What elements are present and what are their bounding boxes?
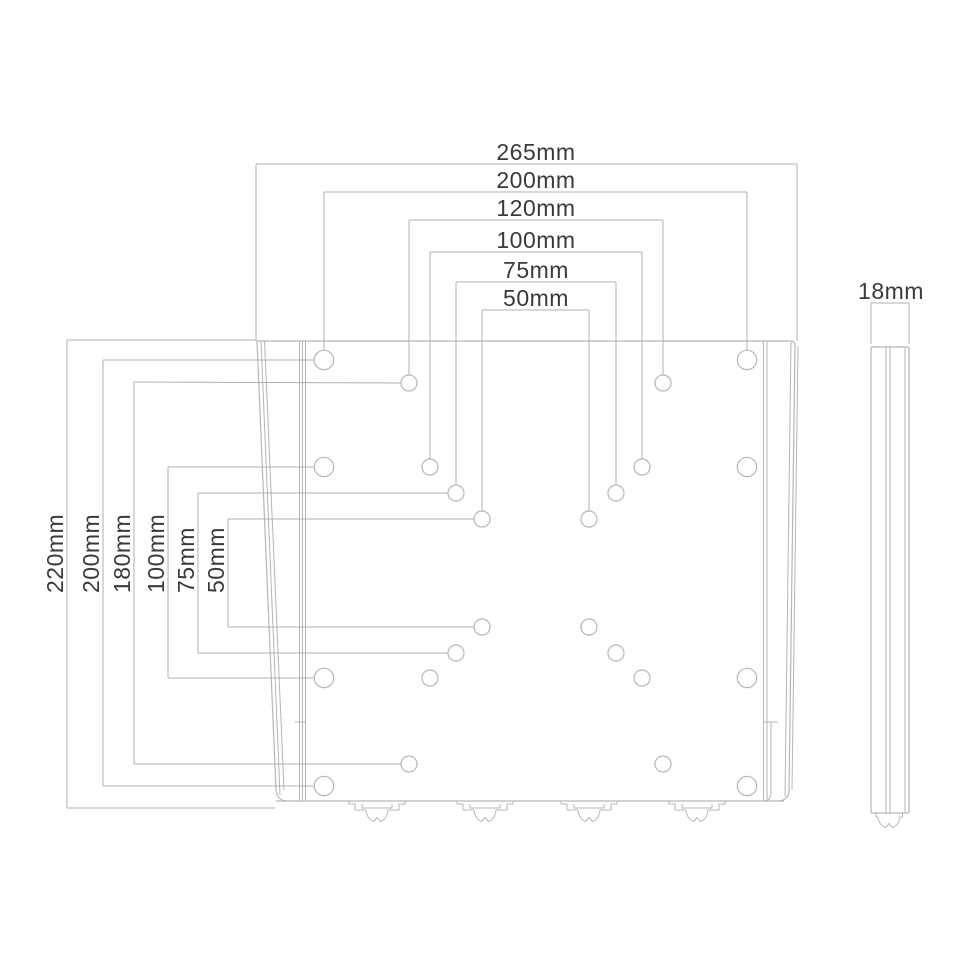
vesa-120x180-holes [401,375,671,772]
hole [401,756,417,772]
wall-mount-dimension-diagram: 265mm 200mm 120mm 100mm 75mm [0,0,961,961]
hole [608,645,624,661]
dim-label-18mm: 18mm [858,278,924,304]
hole [422,670,438,686]
hole [608,485,624,501]
dim-label-50mm-v: 50mm [203,527,229,593]
side-profile [871,347,909,828]
hole [314,457,333,476]
vesa-75x75-holes [448,485,624,661]
hole [474,619,490,635]
hole [448,645,464,661]
dim-label-100mm-v: 100mm [143,514,169,593]
hole [422,459,438,475]
hole [634,670,650,686]
plate-top-edge [257,341,795,345]
technical-drawing-canvas: 265mm 200mm 120mm 100mm 75mm [0,0,961,961]
dim-label-50mm: 50mm [503,285,569,311]
dim-label-75mm: 75mm [503,257,569,283]
hole [655,756,671,772]
plate-left-rail [257,341,306,801]
vesa-50x50-holes [474,511,597,635]
hole [655,375,671,391]
hole [314,350,333,369]
hole [737,350,756,369]
dim-depth-18: 18mm [858,278,924,344]
dim-label-200mm: 200mm [496,167,575,193]
tab [349,801,405,822]
dim-label-100mm: 100mm [496,227,575,253]
tab [669,801,725,822]
hole [314,776,333,795]
dim-height-50: 50mm [203,519,474,627]
dim-label-265mm: 265mm [496,139,575,165]
hole [634,459,650,475]
top-dimensions: 265mm 200mm 120mm 100mm 75mm [256,139,797,511]
hole [448,485,464,501]
side-foot [876,813,903,828]
tab [561,801,617,822]
dim-label-180mm: 180mm [109,514,135,593]
tab [457,801,513,822]
plate-bottom-tabs [349,801,725,822]
dim-width-50: 50mm [482,285,589,511]
dim-label-220mm: 220mm [42,514,68,593]
left-dimensions: 220mm 200mm 180mm 100mm 75mm [42,340,474,808]
hole [737,776,756,795]
hole [474,511,490,527]
dim-label-75mm-v: 75mm [173,527,199,593]
dim-label-120mm: 120mm [496,195,575,221]
wall-fixing-holes [314,350,756,795]
dim-label-200mm-v: 200mm [78,514,104,593]
hole [581,619,597,635]
hole [581,511,597,527]
hole [737,457,756,476]
side-view: 18mm [858,278,924,828]
plate-right-rail [763,341,798,801]
front-view-plate [257,341,798,822]
hole [401,375,417,391]
hole [737,668,756,687]
hole [314,668,333,687]
